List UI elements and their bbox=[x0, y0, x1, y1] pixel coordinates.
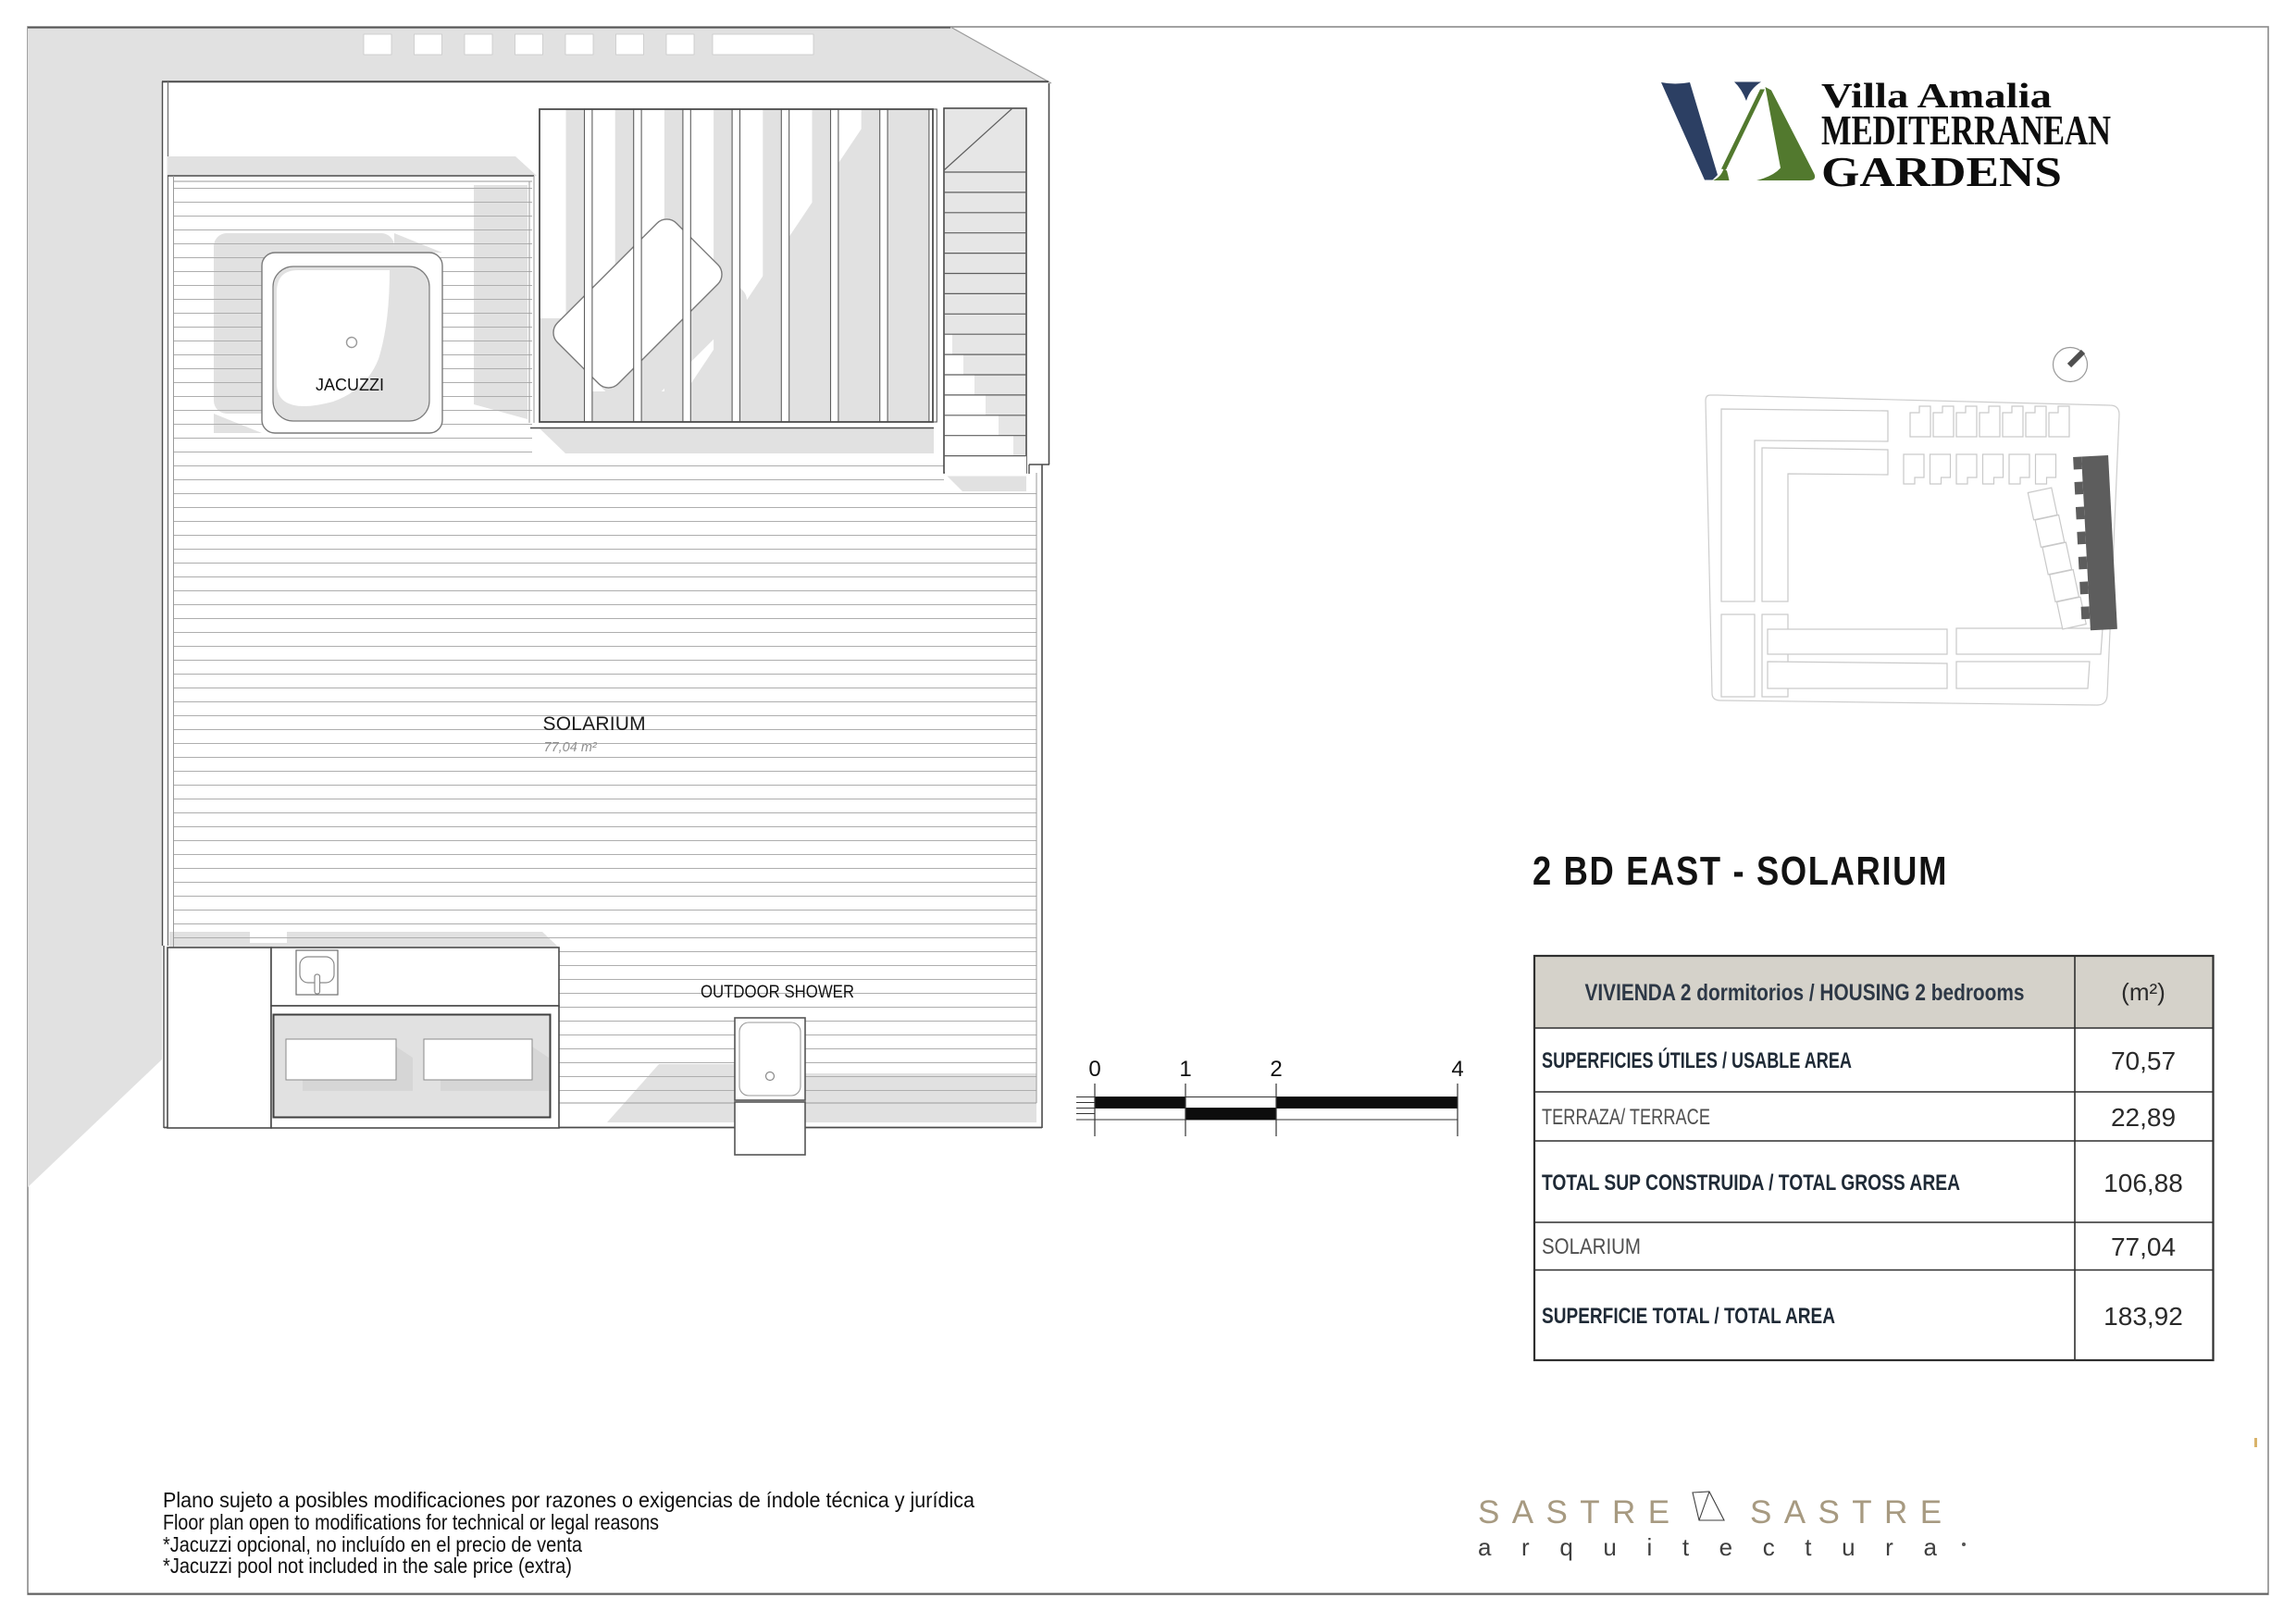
svg-text:22,89: 22,89 bbox=[2111, 1103, 2176, 1132]
svg-text:106,88: 106,88 bbox=[2104, 1169, 2183, 1197]
svg-text:GARDENS: GARDENS bbox=[1821, 148, 2062, 195]
svg-text:2 BD EAST - SOLARIUM: 2 BD EAST - SOLARIUM bbox=[1533, 849, 1948, 894]
svg-text:Plano sujeto a posibles modifi: Plano sujeto a posibles modificaciones p… bbox=[163, 1488, 974, 1512]
svg-text:MEDITERRANEAN: MEDITERRANEAN bbox=[1821, 106, 2111, 154]
svg-text:SOLARIUM: SOLARIUM bbox=[1542, 1234, 1641, 1259]
svg-text:77,04 m²: 77,04 m² bbox=[544, 740, 598, 755]
svg-text:77,04: 77,04 bbox=[2111, 1233, 2176, 1261]
svg-text:2: 2 bbox=[1270, 1057, 1282, 1082]
svg-text:TOTAL SUP CONSTRUIDA / TOTAL G: TOTAL SUP CONSTRUIDA / TOTAL GROSS AREA bbox=[1542, 1171, 1960, 1196]
svg-text:Floor plan open to modificatio: Floor plan open to modifications for tec… bbox=[163, 1510, 659, 1534]
svg-text:SUPERFICIES ÚTILES / USABLE AR: SUPERFICIES ÚTILES / USABLE AREA bbox=[1542, 1047, 1852, 1073]
svg-text:arquitectura: arquitectura bbox=[1478, 1533, 1967, 1561]
svg-text:TERRAZA/ TERRACE: TERRAZA/ TERRACE bbox=[1542, 1105, 1710, 1130]
svg-text:SASTRE: SASTRE bbox=[1750, 1494, 1954, 1530]
svg-text:70,57: 70,57 bbox=[2111, 1047, 2176, 1075]
svg-text:0: 0 bbox=[1088, 1057, 1100, 1082]
svg-text:SASTRE: SASTRE bbox=[1478, 1494, 1682, 1530]
svg-text:OUTDOOR SHOWER: OUTDOOR SHOWER bbox=[701, 982, 854, 1002]
svg-text:JACUZZI: JACUZZI bbox=[316, 376, 384, 394]
svg-text:VIVIENDA 2 dormitorios / HOUSI: VIVIENDA 2 dormitorios / HOUSING 2 bedro… bbox=[1585, 980, 2025, 1006]
svg-text:SOLARIUM: SOLARIUM bbox=[543, 713, 646, 735]
svg-text:*Jacuzzi pool not included in: *Jacuzzi pool not included in the sale p… bbox=[163, 1554, 572, 1578]
svg-text:SUPERFICIE TOTAL / TOTAL AREA: SUPERFICIE TOTAL / TOTAL AREA bbox=[1542, 1304, 1835, 1329]
svg-text:(m²): (m²) bbox=[2121, 978, 2166, 1006]
svg-text:183,92: 183,92 bbox=[2104, 1302, 2183, 1331]
svg-text:1: 1 bbox=[1179, 1057, 1191, 1082]
svg-text:4: 4 bbox=[1451, 1057, 1463, 1082]
